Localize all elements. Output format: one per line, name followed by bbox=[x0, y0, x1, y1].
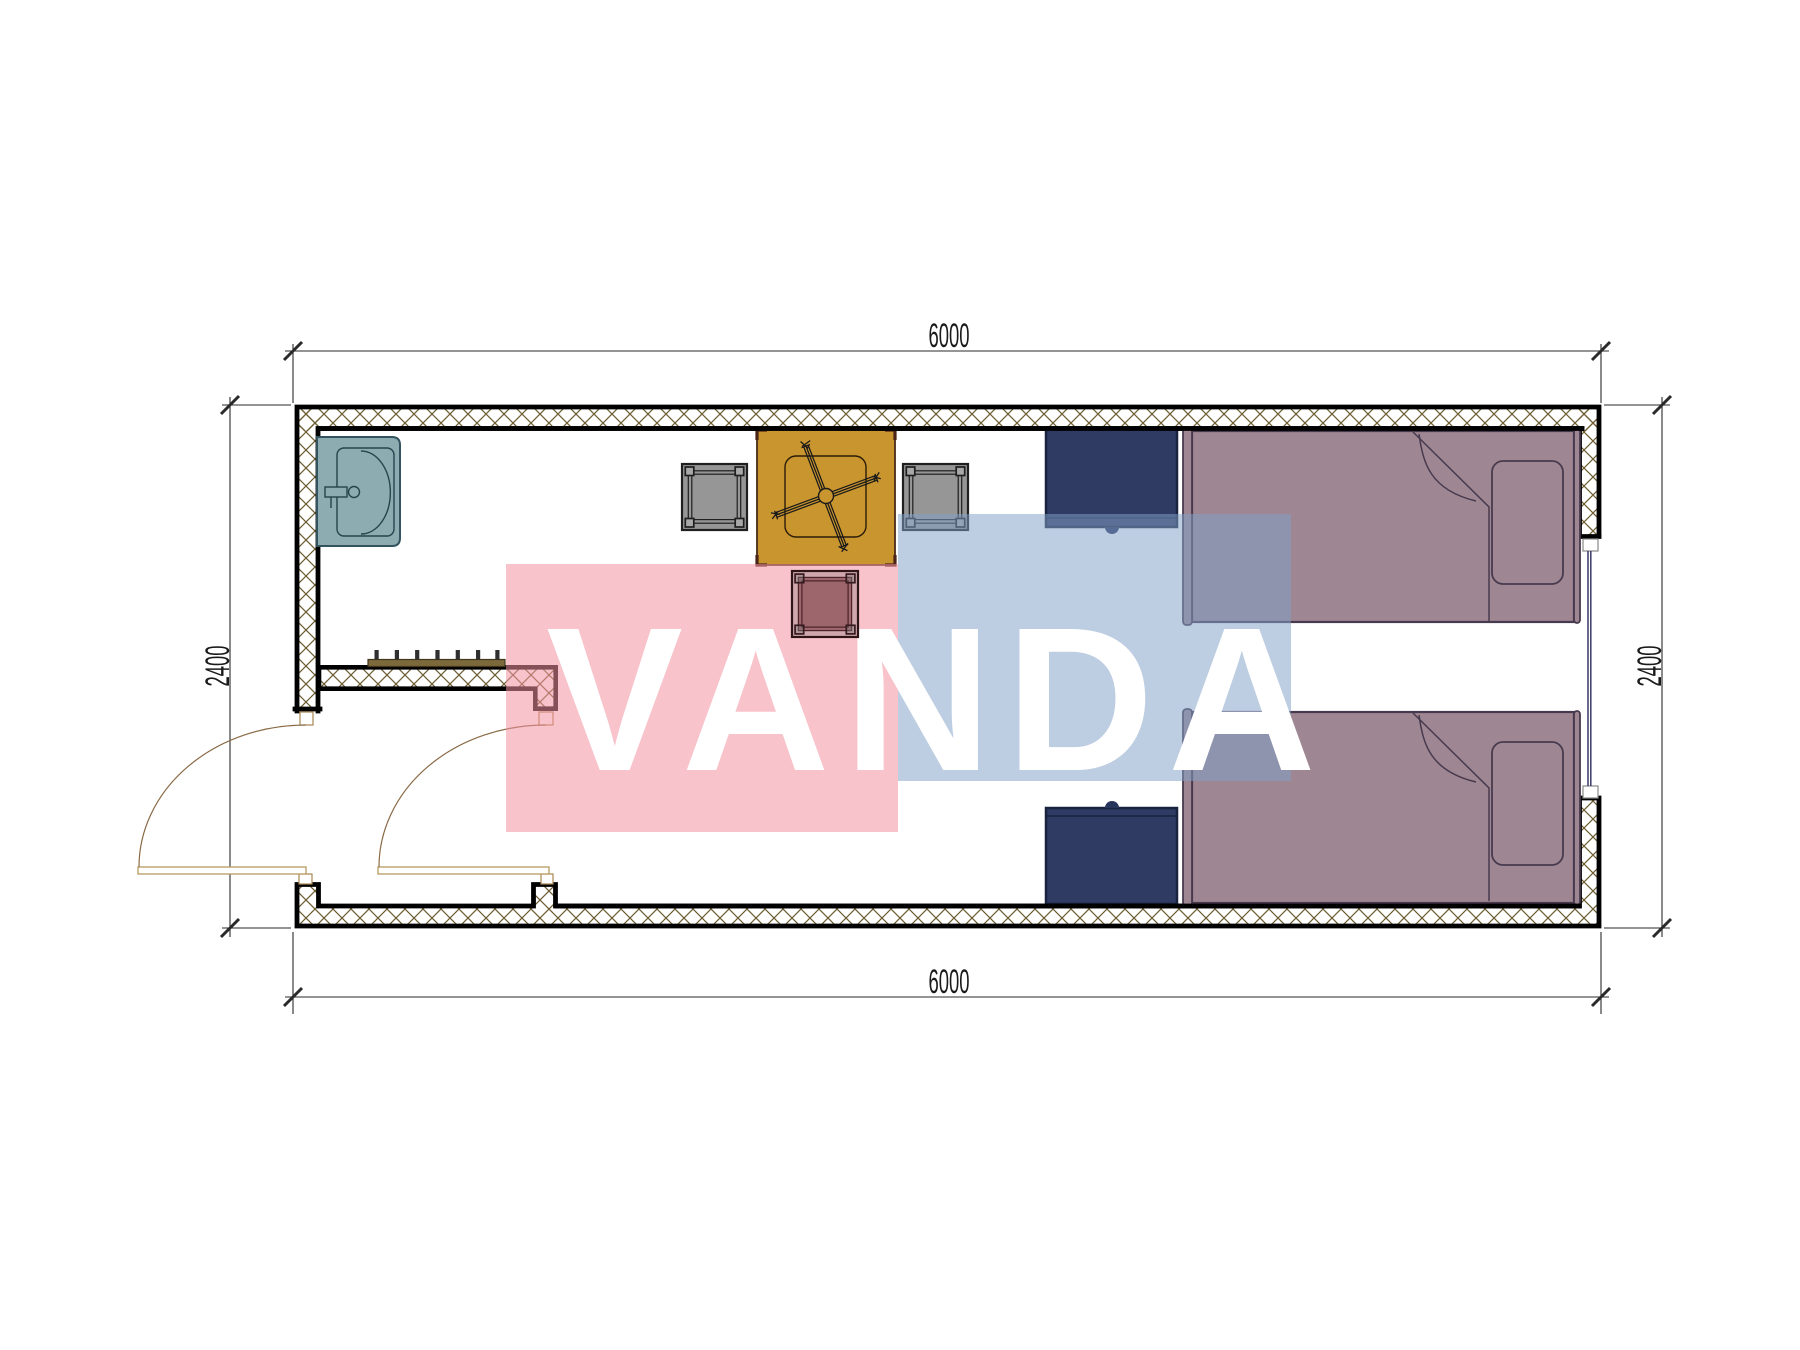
svg-text:6000: 6000 bbox=[929, 317, 970, 355]
svg-text:VANDA: VANDA bbox=[546, 585, 1330, 814]
svg-text:2400: 2400 bbox=[199, 646, 237, 687]
svg-text:2400: 2400 bbox=[1631, 646, 1669, 687]
svg-text:6000: 6000 bbox=[929, 963, 970, 1001]
